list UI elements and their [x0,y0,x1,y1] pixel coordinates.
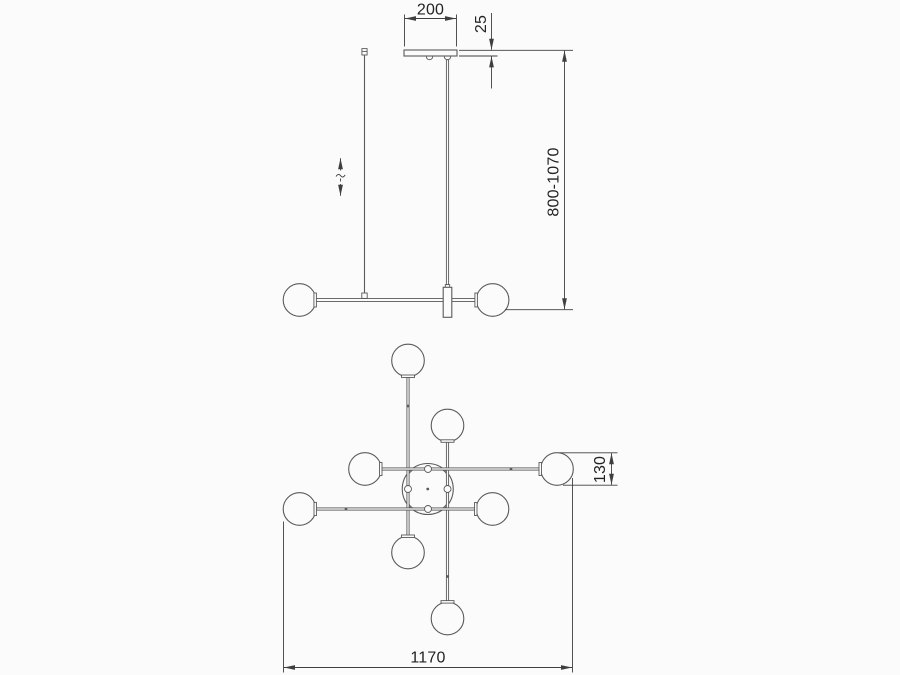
sphere-neck [314,503,317,516]
glass-sphere [392,536,425,569]
cable-connector [362,293,367,298]
dim-canopy-width: 200 [405,2,457,47]
glass-sphere [283,284,316,317]
tilde-backing [335,172,346,179]
sphere-neck [402,375,415,378]
sphere-neck [475,503,478,516]
dim-label-canopy-thickness: 25 [473,15,490,33]
sphere-neck [380,463,383,476]
dim-label-shade-diameter: 130 [592,456,609,483]
rod-joint [405,486,412,493]
technical-drawing-canvas: 200 25 [0,0,900,675]
glass-sphere [476,493,509,526]
center-point [426,488,429,491]
glass-sphere [476,284,509,317]
luminaire-drawing: 200 25 [0,0,900,675]
suspension-rod [446,60,448,285]
arm-rod-vertical-2 [446,442,448,603]
rod-connector-tick [510,468,513,471]
glass-sphere [349,453,382,486]
rod-connector-tick [345,508,348,511]
ceiling-hook [362,49,367,55]
sphere-neck [314,293,317,307]
rod-joint [444,486,451,493]
dim-suspension-height: 800-1070 [459,50,573,309]
front-elevation-view: 200 25 [283,2,573,318]
glass-sphere [431,602,464,635]
rod-joint [425,506,432,513]
canopy-loop [444,57,450,60]
sphere-neck [441,601,454,604]
plan-view: 130 1170 [283,344,617,672]
rod-bar-connector [443,285,452,318]
rod-connector-tick [446,575,449,578]
glass-sphere [283,493,316,526]
dim-label-suspension-height: 800-1070 [546,147,563,216]
ceiling-canopy-plate [404,50,457,56]
sphere-neck [539,463,542,476]
glass-sphere [431,409,464,442]
connector-body [443,287,452,317]
dim-label-canopy-width: 200 [417,2,444,19]
rod-joint [425,466,432,473]
sphere-neck [475,293,478,307]
dim-label-total-width: 1170 [410,650,445,667]
rod-connector-tick [407,405,410,408]
sphere-neck [441,440,454,443]
sphere-neck [402,535,415,538]
canopy-loop [426,57,432,60]
glass-sphere [541,453,574,486]
arm-rod-vertical-1 [407,377,409,536]
glass-sphere [392,344,425,377]
arm-rod-horizontal-1 [381,468,541,470]
height-adjust-icon [335,158,346,195]
arm-rod-horizontal-2 [316,508,477,510]
